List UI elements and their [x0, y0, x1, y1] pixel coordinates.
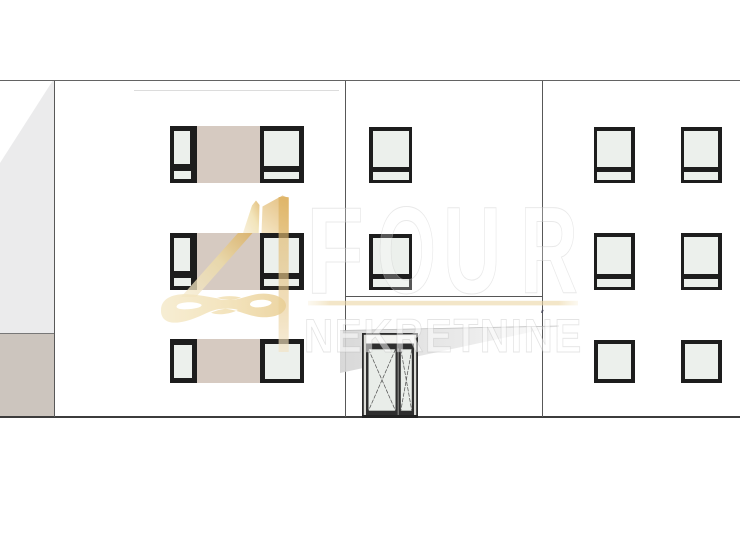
svg-text:F: F — [306, 183, 364, 320]
svg-text:R: R — [520, 183, 578, 320]
svg-text:O: O — [377, 183, 436, 320]
svg-text:U: U — [443, 183, 501, 320]
svg-text:NEKRETNINE: NEKRETNINE — [304, 310, 583, 363]
